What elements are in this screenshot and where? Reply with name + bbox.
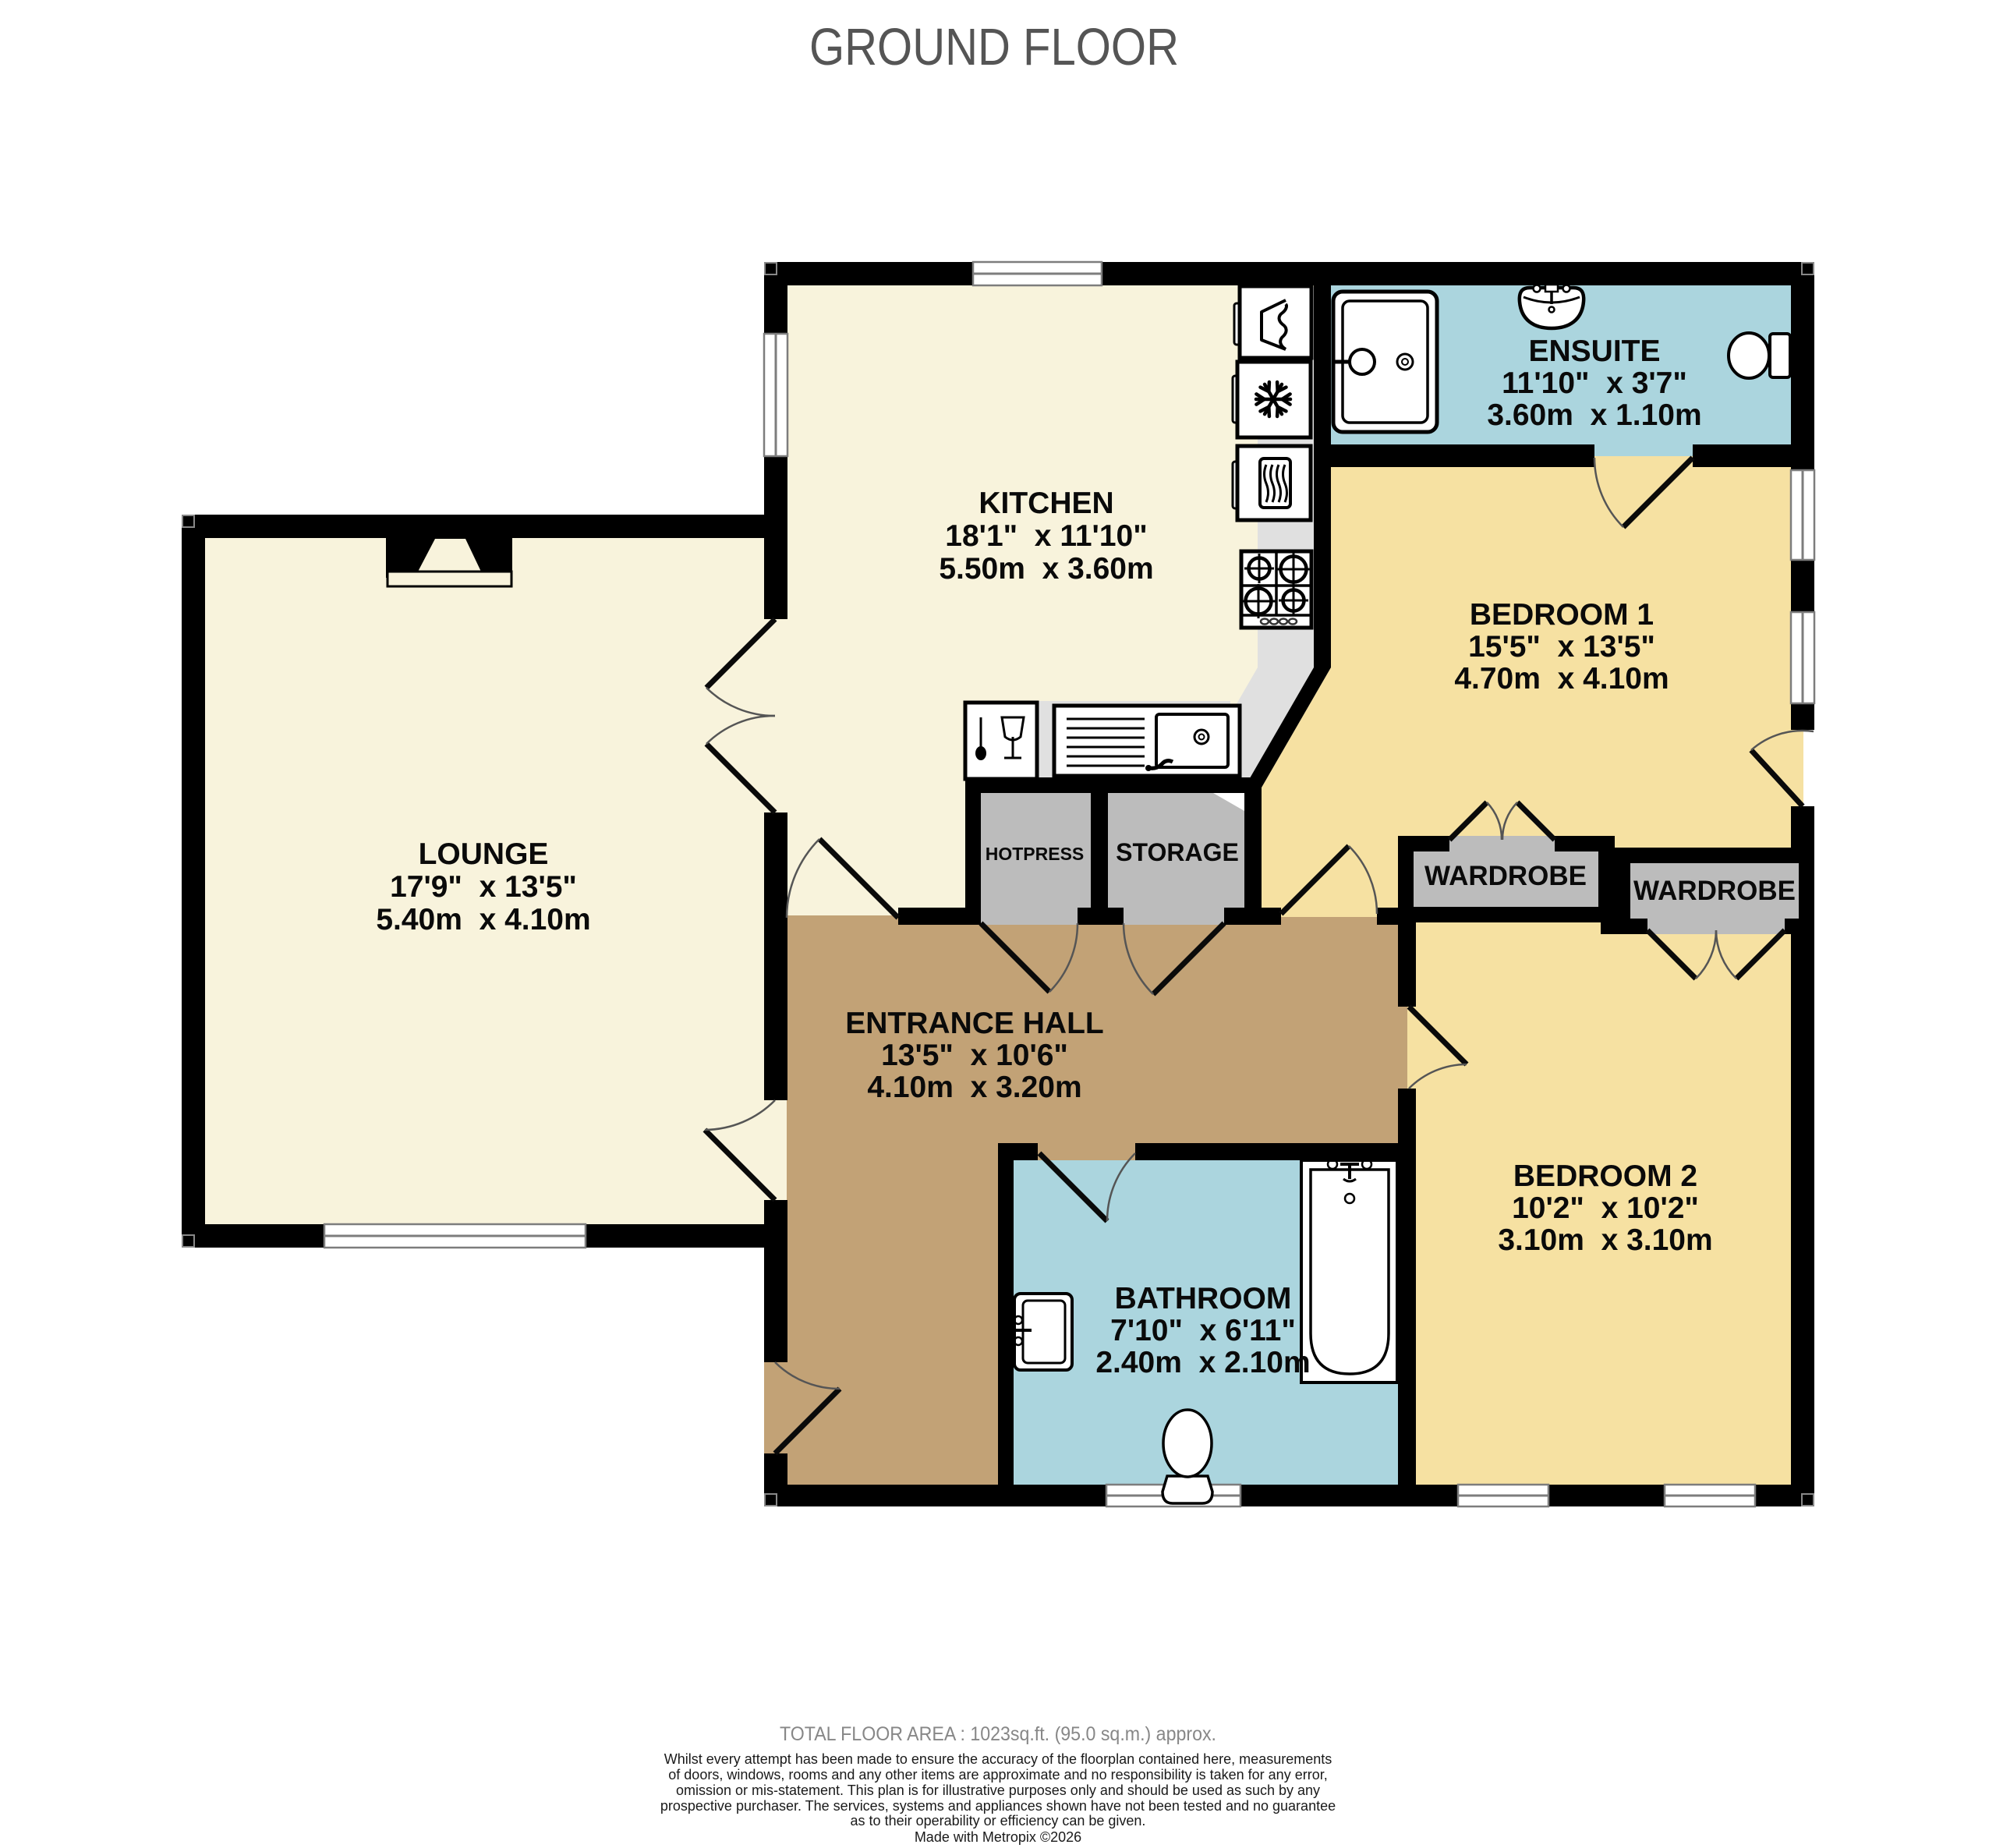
svg-text:15'5" x 13'5": 15'5" x 13'5" bbox=[1468, 630, 1655, 664]
svg-text:2.40m x 2.10m: 2.40m x 2.10m bbox=[1095, 1346, 1310, 1379]
svg-text:7'10" x 6'11": 7'10" x 6'11" bbox=[1110, 1314, 1296, 1347]
svg-text:4.10m x 3.20m: 4.10m x 3.20m bbox=[867, 1071, 1081, 1104]
svg-text:Made with Metropix ©2026: Made with Metropix ©2026 bbox=[915, 1829, 1081, 1845]
svg-text:prospective purchaser. The ser: prospective purchaser. The services, sys… bbox=[660, 1798, 1336, 1814]
svg-text:HOTPRESS: HOTPRESS bbox=[986, 844, 1085, 864]
svg-text:5.40m x 4.10m: 5.40m x 4.10m bbox=[376, 903, 590, 936]
svg-text:3.60m x 1.10m: 3.60m x 1.10m bbox=[1487, 398, 1701, 432]
svg-text:ENTRANCE HALL: ENTRANCE HALL bbox=[845, 1007, 1103, 1040]
svg-text:WARDROBE: WARDROBE bbox=[1633, 876, 1796, 906]
svg-text:Whilst every attempt has been: Whilst every attempt has been made to en… bbox=[664, 1751, 1332, 1767]
svg-text:10'2" x 10'2": 10'2" x 10'2" bbox=[1512, 1191, 1699, 1225]
svg-text:BEDROOM 2: BEDROOM 2 bbox=[1513, 1159, 1697, 1193]
svg-text:LOUNGE: LOUNGE bbox=[419, 837, 549, 871]
svg-text:5.50m x 3.60m: 5.50m x 3.60m bbox=[939, 552, 1153, 586]
svg-text:17'9" x 13'5": 17'9" x 13'5" bbox=[390, 870, 577, 904]
svg-text:3.10m x 3.10m: 3.10m x 3.10m bbox=[1498, 1223, 1712, 1257]
svg-text:as to their operability or eff: as to their operability or efficiency ca… bbox=[851, 1813, 1146, 1829]
svg-text:11'10" x 3'7": 11'10" x 3'7" bbox=[1502, 366, 1687, 400]
svg-text:13'5" x 10'6": 13'5" x 10'6" bbox=[881, 1039, 1068, 1072]
svg-text:STORAGE: STORAGE bbox=[1116, 838, 1239, 866]
svg-text:4.70m x 4.10m: 4.70m x 4.10m bbox=[1454, 662, 1669, 696]
svg-text:omission or mis-statement. Thi: omission or mis-statement. This plan is … bbox=[676, 1783, 1320, 1798]
svg-text:BEDROOM 1: BEDROOM 1 bbox=[1470, 598, 1654, 632]
svg-text:of doors, windows, rooms and a: of doors, windows, rooms and any other i… bbox=[668, 1767, 1327, 1783]
svg-text:ENSUITE: ENSUITE bbox=[1528, 335, 1660, 368]
svg-text:BATHROOM: BATHROOM bbox=[1115, 1282, 1292, 1315]
svg-text:KITCHEN: KITCHEN bbox=[979, 487, 1113, 520]
svg-text:WARDROBE: WARDROBE bbox=[1424, 861, 1587, 891]
svg-text:GROUND FLOOR: GROUND FLOOR bbox=[809, 18, 1179, 76]
svg-text:18'1" x 11'10": 18'1" x 11'10" bbox=[945, 519, 1147, 553]
svg-text:TOTAL FLOOR AREA : 1023sq.ft.: TOTAL FLOOR AREA : 1023sq.ft. (95.0 sq.m… bbox=[780, 1723, 1216, 1745]
